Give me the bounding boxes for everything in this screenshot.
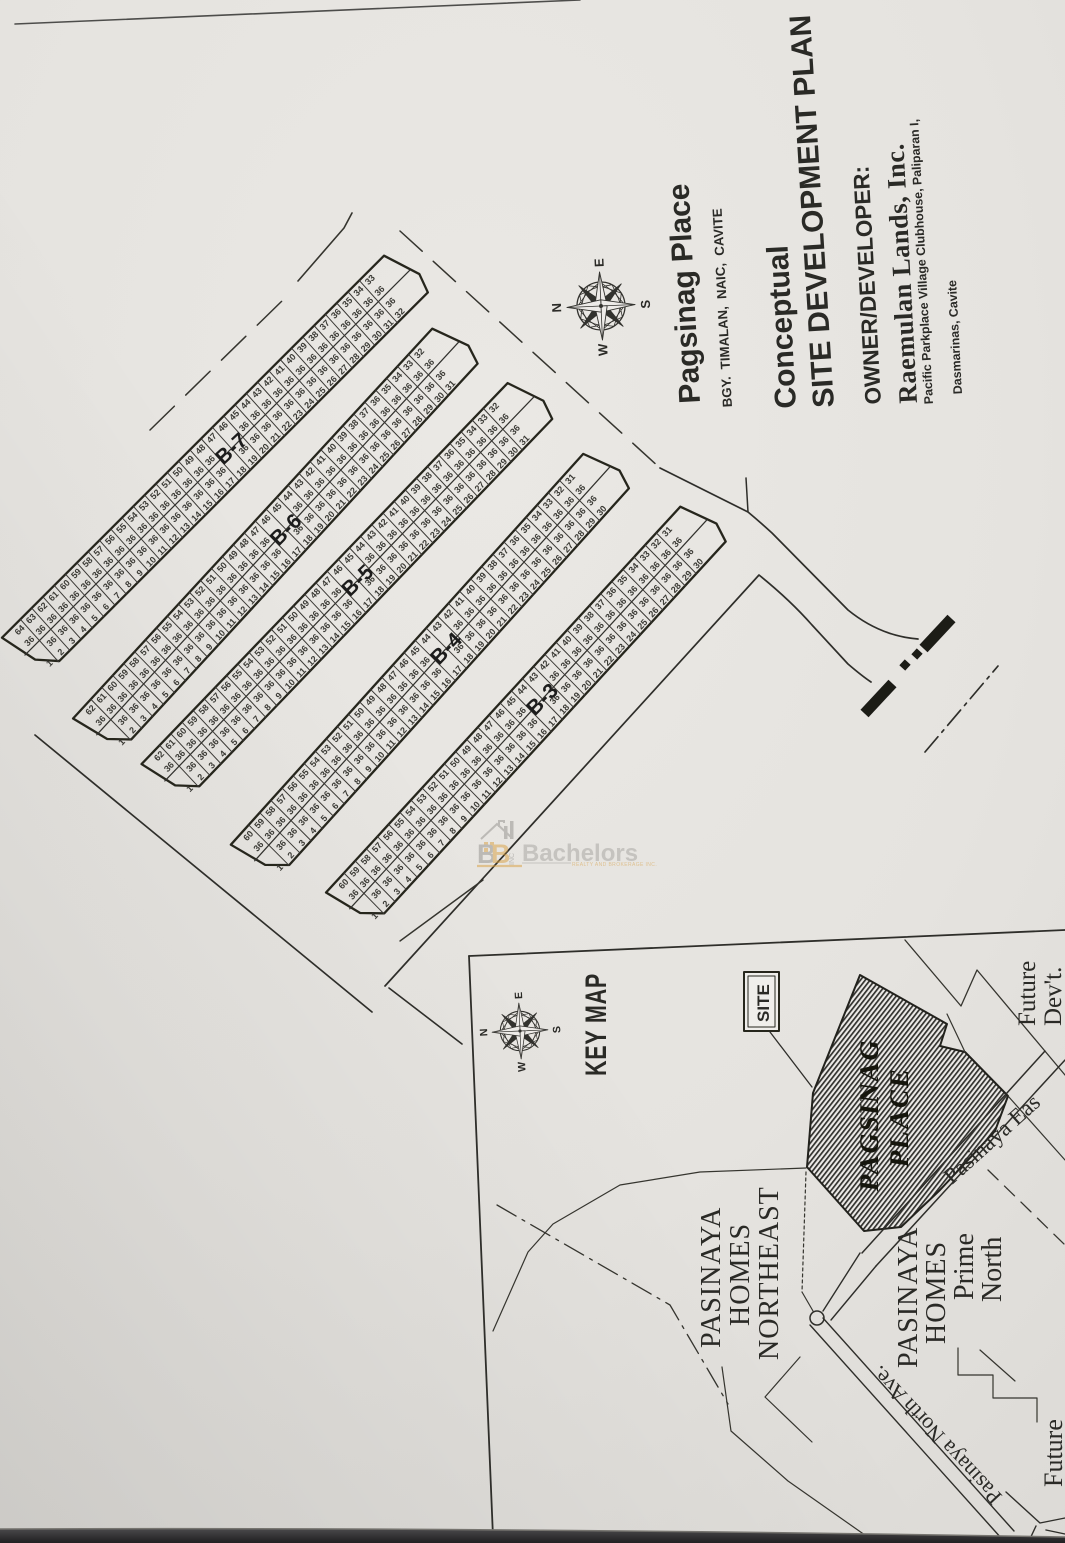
svg-text:INC: INC: [509, 853, 516, 865]
svg-text:S: S: [638, 299, 653, 309]
svg-text:Future: Future: [1039, 1419, 1065, 1487]
svg-text:PLACE: PLACE: [884, 1066, 914, 1169]
svg-text:SITE: SITE: [754, 984, 773, 1022]
svg-text:E: E: [591, 258, 606, 268]
svg-text:E: E: [513, 992, 525, 1000]
svg-text:PASINAYA: PASINAYA: [893, 1227, 924, 1368]
svg-text:HOMES: HOMES: [725, 1223, 756, 1326]
svg-text:W: W: [516, 1061, 528, 1073]
svg-text:REALTY AND BROKERAGE INC.: REALTY AND BROKERAGE INC.: [572, 862, 657, 868]
svg-text:North: North: [977, 1237, 1008, 1302]
svg-text:PAGSINAG: PAGSINAG: [854, 1036, 884, 1193]
svg-text:B: B: [491, 839, 511, 869]
svg-text:Dev't.: Dev't.: [1040, 967, 1065, 1026]
svg-text:PASINAYA: PASINAYA: [696, 1207, 727, 1348]
svg-text:W: W: [595, 343, 611, 357]
svg-text:HOMES: HOMES: [921, 1241, 952, 1344]
svg-text:KEY MAP: KEY MAP: [578, 973, 612, 1076]
svg-text:N: N: [478, 1028, 490, 1036]
svg-text:N: N: [549, 303, 564, 313]
svg-text:Future: Future: [1014, 961, 1041, 1026]
svg-text:S: S: [551, 1026, 563, 1034]
svg-text:NORTHEAST: NORTHEAST: [754, 1186, 785, 1360]
svg-text:Prime: Prime: [949, 1233, 980, 1300]
